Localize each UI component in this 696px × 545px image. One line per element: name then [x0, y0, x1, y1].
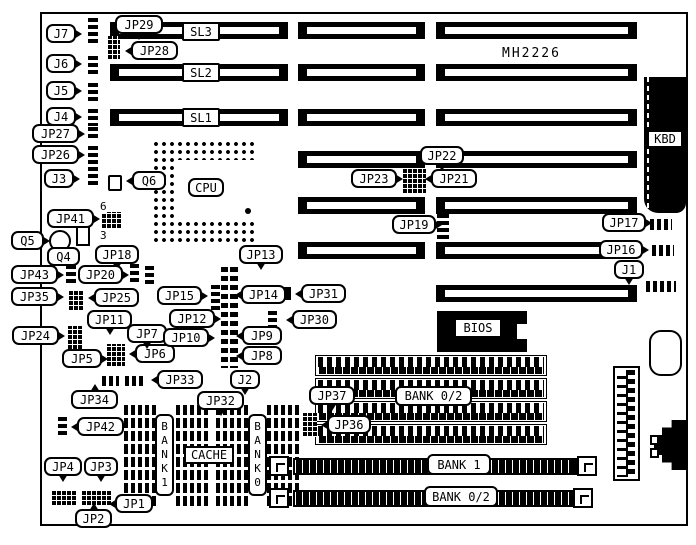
jp41-pin3-number: 3: [100, 229, 107, 242]
callout-jp36: JP36: [327, 415, 371, 434]
callout-jp22: JP22: [420, 146, 464, 165]
jp18-header: [145, 266, 154, 284]
simm-bar: [318, 367, 544, 374]
slot-row3-seg3: [436, 109, 637, 126]
cache-label: CACHE: [184, 446, 234, 464]
cache-chips-col1: [124, 405, 158, 506]
callout-jp15: JP15: [157, 286, 202, 305]
jp4-block: [51, 491, 77, 506]
callout-jp21: JP21: [431, 169, 477, 188]
callout-j1: J1: [614, 260, 644, 279]
callout-jp29: JP29: [115, 15, 163, 34]
callout-j5: J5: [46, 81, 76, 100]
callout-jp5: JP5: [62, 349, 102, 368]
slot-label-sl2: SL2: [182, 63, 220, 82]
slot-row5-seg2: [436, 197, 637, 214]
callout-jp16: JP16: [599, 240, 643, 259]
connector-tab: [650, 435, 659, 445]
j7-header: [88, 18, 98, 45]
slot-row7-seg1: [436, 285, 637, 302]
jp36-jp37-block: [302, 413, 317, 437]
callout-jp31: JP31: [301, 284, 346, 303]
j3-header: [88, 167, 98, 185]
slot-row5-seg1: [298, 197, 425, 214]
callout-jp3: JP3: [84, 457, 118, 476]
slot-label-sl3: SL3: [182, 22, 220, 41]
jp30-header: [268, 311, 277, 327]
callout-jp23: JP23: [351, 169, 397, 188]
slot-row1-seg3: [436, 22, 637, 39]
jp29-jp28-block: [107, 36, 120, 60]
callout-jp42: JP42: [77, 417, 124, 436]
callout-jp19: JP19: [392, 215, 436, 234]
jp41-pin6-number: 6: [100, 200, 107, 213]
slot-row4-seg2: [436, 151, 637, 168]
callout-jp37: JP37: [309, 386, 355, 405]
callout-j2: J2: [230, 370, 260, 389]
simm-clip: [269, 488, 289, 508]
callout-j7: J7: [46, 24, 76, 43]
board-model-text: MH2226: [502, 46, 561, 61]
slot-row2-seg3: [436, 64, 637, 81]
callout-jp26: JP26: [32, 145, 79, 164]
callout-j6: J6: [46, 54, 76, 73]
slot-row6-seg1: [298, 242, 425, 259]
callout-jp24: JP24: [12, 326, 59, 345]
power-connector: [613, 366, 640, 481]
simm-clip: [573, 488, 593, 508]
callout-jp14: JP14: [241, 285, 286, 304]
callout-jp17: JP17: [602, 213, 646, 232]
callout-jp28: JP28: [131, 41, 178, 60]
jp35-block: [68, 290, 83, 311]
callout-jp9: JP9: [242, 326, 282, 345]
callout-jp11: JP11: [87, 310, 132, 329]
callout-jp18: JP18: [95, 245, 139, 264]
callout-jp1: JP1: [115, 494, 153, 513]
connector-tab: [650, 448, 659, 458]
crystal-outline: [649, 330, 682, 376]
kbd-label: KBD: [647, 130, 683, 148]
simm-clip: [269, 456, 289, 476]
callout-q5: Q5: [11, 231, 44, 250]
callout-jp32: JP32: [197, 391, 244, 410]
callout-jp43: JP43: [11, 265, 58, 284]
cpu-pin1-dot: [245, 208, 251, 214]
callout-jp2: JP2: [75, 509, 112, 528]
bios-chip-notch: [517, 324, 527, 339]
callout-jp27: JP27: [32, 124, 79, 143]
jp16-header: [652, 245, 674, 256]
callout-jp34: JP34: [71, 390, 118, 409]
motherboard-diagram: SL3 SL2 SL1 MH2226 KBD J7 J6 J5 J4 JP27 …: [0, 0, 696, 545]
callout-jp7: JP7: [127, 324, 167, 343]
bank1-label: BANK 1: [427, 454, 491, 475]
j1-header: [646, 281, 676, 292]
callout-q6: Q6: [132, 171, 166, 190]
slot-row3-seg2: [298, 109, 425, 126]
callout-jp8: JP8: [242, 346, 282, 365]
callout-q4: Q4: [47, 247, 80, 266]
slot-row4-seg1: [298, 151, 425, 168]
callout-jp13: JP13: [239, 245, 283, 264]
cpu-label: CPU: [188, 178, 224, 197]
simm-clip: [577, 456, 597, 476]
callout-jp33: JP33: [157, 370, 203, 389]
j5-header: [88, 83, 98, 102]
bank02-top-label: BANK 0/2: [395, 386, 472, 406]
bios-label: BIOS: [454, 318, 502, 338]
callout-jp10: JP10: [163, 328, 209, 347]
cache-bank0-label: B A N K 0: [248, 414, 267, 496]
simm-bar: [318, 436, 544, 443]
callout-jp20: JP20: [78, 265, 123, 284]
j4-header: [88, 109, 98, 126]
callout-jp41: JP41: [47, 209, 94, 228]
callout-jp35: JP35: [11, 287, 58, 306]
slot-row2-seg2: [298, 64, 425, 81]
j6-header: [88, 56, 98, 76]
bank02-bottom-label: BANK 0/2: [424, 486, 498, 507]
callout-jp30: JP30: [292, 310, 337, 329]
jp33-header: [125, 376, 144, 386]
q6-part: [108, 175, 122, 191]
callout-jp4: JP4: [44, 457, 82, 476]
callout-jp25: JP25: [94, 288, 139, 307]
simm-teeth: [318, 357, 544, 367]
callout-j3: J3: [44, 169, 74, 188]
slot-label-sl1: SL1: [182, 108, 220, 127]
jp34-header: [102, 376, 119, 386]
cache-bank1-label: B A N K 1: [155, 414, 174, 496]
callout-jp12: JP12: [169, 309, 215, 328]
simm-socket-row1: [315, 355, 547, 376]
slot-row1-seg2: [298, 22, 425, 39]
